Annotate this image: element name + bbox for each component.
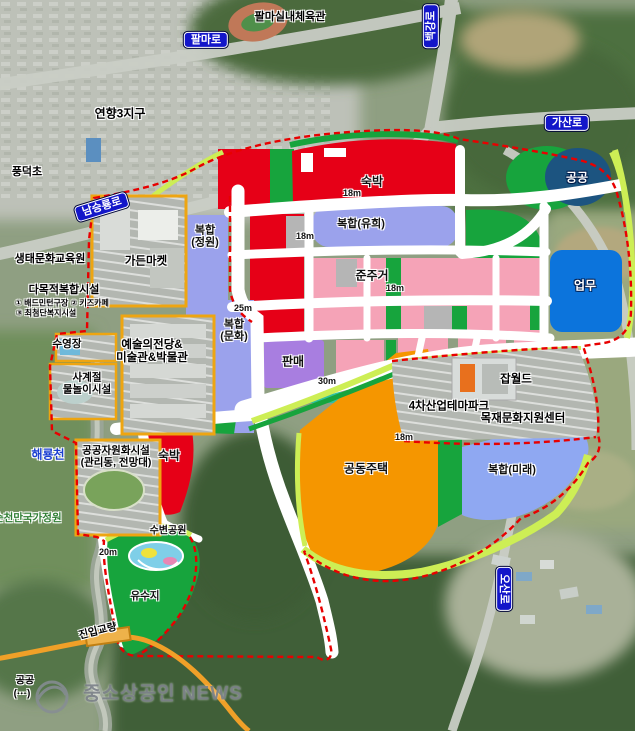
- fac-water-play: 사계절 물놀이시설: [63, 372, 111, 396]
- fac-arts-center: 예술의전당& 미술관&박물관: [116, 339, 188, 365]
- fac-multipurpose-note-1: ① 배드민턴구장 ② 키즈카페: [15, 300, 109, 309]
- width-18m-2: 18m: [296, 231, 314, 241]
- zone-label-eopmu: 업무: [574, 279, 596, 292]
- width-20m: 20m: [99, 547, 117, 557]
- width-30m: 30m: [318, 376, 336, 386]
- zone-label-gonggong: 공공: [566, 171, 588, 184]
- sign-namseungnyong-ro: 남승룡로: [74, 191, 131, 223]
- zone-label-yusuji: 유수지: [131, 591, 160, 603]
- zone-label-bokhap-mirae: 복합(미래): [488, 464, 536, 476]
- sign-baekgang-ro: 백강로: [423, 4, 439, 48]
- zone-label-sukbak-sw: 숙박: [158, 449, 180, 462]
- zone-label-panmae: 판매: [282, 355, 304, 368]
- zone-label-bokhap-jeongwon: 복합 (정원): [191, 225, 219, 250]
- fac-ecology-center: 생태문화교육원: [15, 253, 86, 265]
- zone-label-subyeon-park: 수변공원: [150, 525, 187, 536]
- fac-wood-center: 목재문화지원센터: [481, 413, 566, 426]
- fac-public-resource: 공공자원화시설 (관리동, 전망대): [81, 445, 152, 469]
- zone-label-junjugeo: 준주거: [355, 269, 388, 282]
- zone-label-gongdong-jutaek: 공동주택: [344, 462, 388, 475]
- place-palma-gym: 팔마실내체육관: [255, 11, 326, 23]
- width-18m-3: 18m: [386, 283, 404, 293]
- fac-multipurpose: 다목적복합시설: [29, 284, 100, 296]
- sign-gasan-ro: 가산로: [545, 115, 589, 131]
- zone-label-bokhap-munhwa: 복합 (문화): [220, 319, 248, 344]
- sign-osan-ro: 오산로: [496, 567, 512, 611]
- fac-industry-park: 4차산업테마파크: [409, 401, 489, 414]
- width-18m-4: 18m: [395, 432, 413, 442]
- fac-entry-bridge: 진입교량: [78, 622, 118, 643]
- park-suncheonman-garden: 순천만국가정원: [0, 513, 62, 525]
- text-paren-partial: (···): [14, 688, 31, 699]
- width-18m-1: 18m: [343, 188, 361, 198]
- width-25m: 25m: [234, 303, 252, 313]
- river-haeryongcheon: 해룡천: [31, 448, 64, 461]
- sign-palma-ro: 팔마로: [184, 32, 228, 48]
- place-yeonhyang-district: 연향3지구: [95, 107, 146, 120]
- fac-swimming-pool: 수영장: [53, 339, 82, 351]
- text-gonggong-partial: 공공: [16, 675, 34, 686]
- zone-label-bokhap-yuhi: 복합(유희): [337, 218, 385, 230]
- fac-garden-market: 가든마켓: [125, 256, 167, 269]
- fac-multipurpose-note-2: ③ 최첨단복지시설: [16, 310, 77, 319]
- place-pungdeok-elem: 풍덕초: [12, 166, 42, 178]
- fac-job-world: 잡월드: [500, 374, 532, 387]
- plan-map: 팔마로백강로가산로남승룡로오산로팔마실내체육관연향3지구풍덕초숙박공공복합(유희…: [0, 0, 635, 731]
- zone-label-sukbak-top: 숙박: [361, 175, 383, 188]
- label-layer: 팔마로백강로가산로남승룡로오산로팔마실내체육관연향3지구풍덕초숙박공공복합(유희…: [0, 0, 635, 731]
- watermark-text: 중소상공인 NEWS: [83, 683, 243, 704]
